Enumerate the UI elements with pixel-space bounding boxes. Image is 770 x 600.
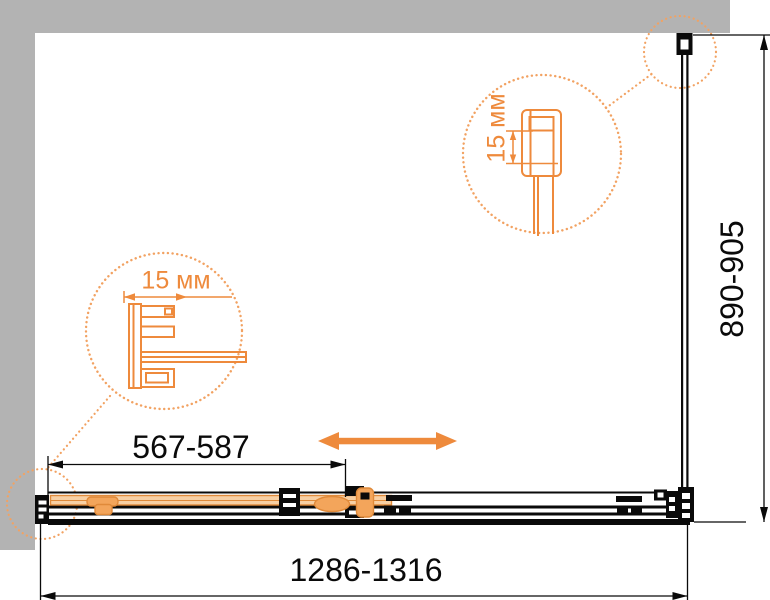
clamp-slot: [682, 493, 690, 499]
arrow-down-icon: [510, 155, 516, 164]
clamp-slot: [682, 513, 690, 518]
arrow-right-icon: [673, 592, 688, 600]
arrow-left-icon: [48, 461, 63, 469]
dimension-door-width-label: 567-587: [132, 431, 249, 463]
arrow-shaft: [337, 438, 438, 445]
door-roller-right-axle: [361, 493, 370, 500]
side-glass-line-2: [686, 55, 688, 490]
leader-line-top: [606, 73, 653, 108]
profile-outer: [522, 110, 561, 176]
arrow-head-right: [436, 432, 457, 450]
wall-left: [0, 0, 35, 550]
profile-bar-1-slot: [165, 309, 172, 315]
fixed-panel-clip: [617, 506, 628, 513]
panel-clamp: [279, 488, 300, 516]
drawing-linework: [0, 0, 770, 600]
slide-direction-arrow-icon: [318, 432, 457, 450]
track-rail-bottom: [48, 519, 690, 525]
clamp-slot: [658, 493, 664, 498]
bracket-slot: [39, 501, 47, 505]
walls: [0, 0, 730, 550]
detail-drawing-left-profile: [124, 291, 246, 388]
bracket-slot: [39, 515, 44, 519]
side-panel: [677, 33, 693, 490]
corner-profile-a: [666, 491, 678, 518]
detail-top-measure-label: 15 мм: [485, 93, 510, 162]
wall-channel: [129, 304, 141, 388]
dimension-total-width-label: 1286-1316: [289, 554, 442, 586]
door-roller-right: [357, 488, 374, 517]
wall-top: [0, 0, 730, 33]
clamp-slot: [669, 497, 675, 502]
door-handle: [315, 497, 350, 512]
arrow-left-icon: [41, 592, 56, 600]
detail-left-measure-label: 15 мм: [141, 269, 210, 294]
arrow-up-icon: [760, 35, 768, 50]
clamp-slot: [283, 503, 296, 507]
bracket-slot: [39, 508, 47, 512]
fixed-panel-clip-bar: [616, 496, 642, 502]
clamp-slot: [682, 503, 690, 509]
arrow-head-left: [318, 432, 339, 450]
detail-callouts: [7, 16, 716, 539]
sliding-track: [35, 486, 694, 525]
technical-drawing-canvas: 567-587 1286-1316 890-905 15 мм 15 мм: [0, 0, 770, 600]
arrow-up-icon: [510, 131, 516, 140]
arrow-left-icon: [124, 293, 135, 301]
fixed-panel-clip: [631, 506, 642, 513]
fixed-panel-clip-bar: [386, 495, 412, 501]
clamp-slot: [669, 506, 675, 511]
top-wall-bracket-slot: [681, 40, 689, 50]
arrow-right-icon: [331, 461, 346, 469]
clamp-slot: [283, 494, 296, 498]
profile-bar-3-slot: [146, 373, 168, 383]
glass-panel-lines: [534, 176, 553, 236]
fixed-panel-clip: [399, 506, 411, 513]
side-glass-line-1: [681, 55, 683, 490]
door-roller-left-lower: [95, 505, 112, 515]
detail-drawing-top-profile: [506, 110, 561, 236]
dimension-depth-label: 890-905: [716, 220, 748, 337]
fixed-panel-clip: [384, 506, 396, 513]
leader-line-left: [46, 396, 110, 470]
profile-bar-2: [141, 327, 174, 338]
arrow-down-icon: [760, 507, 768, 522]
